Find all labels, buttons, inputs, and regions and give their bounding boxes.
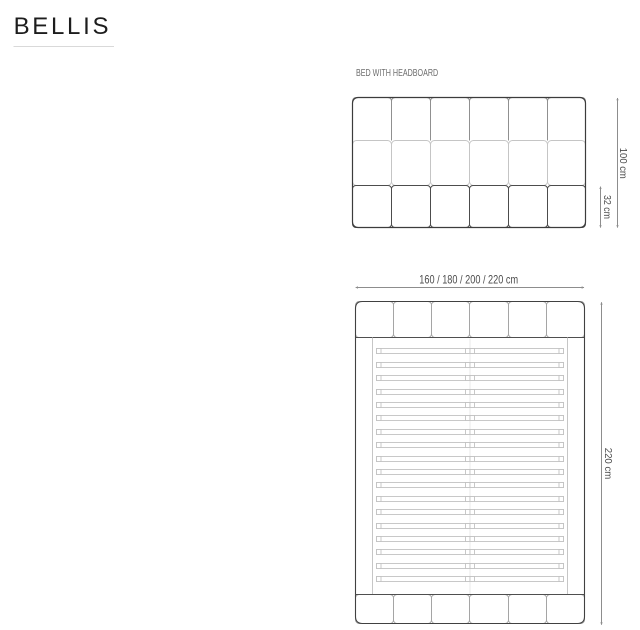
svg-text:BELLIS: BELLIS	[14, 13, 112, 40]
svg-text:32 cm: 32 cm	[601, 195, 613, 219]
svg-text:160 / 180 / 200 / 220 cm: 160 / 180 / 200 / 220 cm	[419, 272, 518, 286]
svg-text:220 cm: 220 cm	[602, 448, 614, 480]
svg-text:100 cm: 100 cm	[617, 148, 629, 179]
svg-text:BED WITH HEADBOARD: BED WITH HEADBOARD	[356, 68, 438, 79]
